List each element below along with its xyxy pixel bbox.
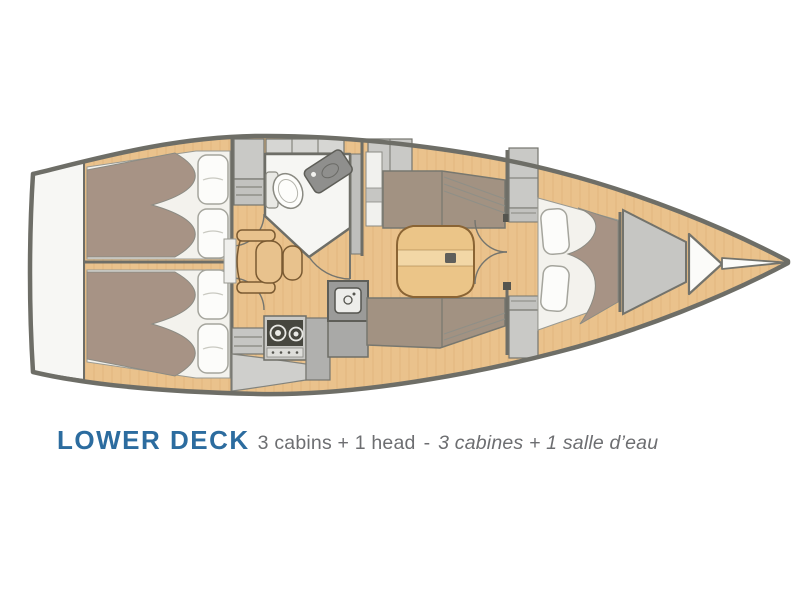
deck-title: LOWER DECK <box>57 427 250 453</box>
drawer-unit <box>234 179 264 205</box>
knob <box>272 351 275 354</box>
stern-platform <box>30 162 84 380</box>
knob <box>288 351 291 354</box>
knob <box>296 351 299 354</box>
salon-table <box>397 226 474 297</box>
caption-separator: - <box>424 434 431 454</box>
locker-shelf <box>366 188 382 202</box>
drawer-unit <box>509 208 538 222</box>
locker <box>509 310 538 358</box>
pillow <box>540 265 570 312</box>
stove <box>264 316 306 360</box>
caption: LOWER DECK 3 cabins + 1 head - 3 cabines… <box>57 427 658 454</box>
caption-english: 3 cabins + 1 head <box>258 434 416 454</box>
pillow <box>540 208 570 255</box>
drawer-unit <box>509 296 538 310</box>
seat-arm <box>237 230 275 241</box>
galley-counter-mid <box>306 318 330 380</box>
floorplan-svg <box>0 0 802 601</box>
drawer-unit <box>232 328 264 354</box>
knob <box>280 351 283 354</box>
table-leaf <box>398 250 473 266</box>
burner <box>275 330 281 336</box>
seat-cushion <box>283 246 302 280</box>
door-hinge <box>503 282 511 290</box>
caption-french: 3 cabines + 1 salle d’eau <box>438 434 658 454</box>
burner <box>294 332 299 337</box>
pillow <box>198 155 228 204</box>
aft-cabin-starboard <box>87 270 230 378</box>
table-fitting <box>445 253 456 263</box>
lower-deck-floorplan: LOWER DECK 3 cabins + 1 head - 3 cabines… <box>0 0 802 601</box>
aft-cabin-port <box>87 151 230 259</box>
locker <box>234 139 264 179</box>
pillow <box>198 324 228 373</box>
shelf <box>266 139 344 153</box>
galley-cabinet <box>328 320 368 357</box>
seat-cushion <box>256 241 282 283</box>
faucet <box>353 293 356 296</box>
galley-sink <box>328 281 368 321</box>
chart-table-flap <box>224 239 236 283</box>
sink-basin <box>335 288 361 313</box>
